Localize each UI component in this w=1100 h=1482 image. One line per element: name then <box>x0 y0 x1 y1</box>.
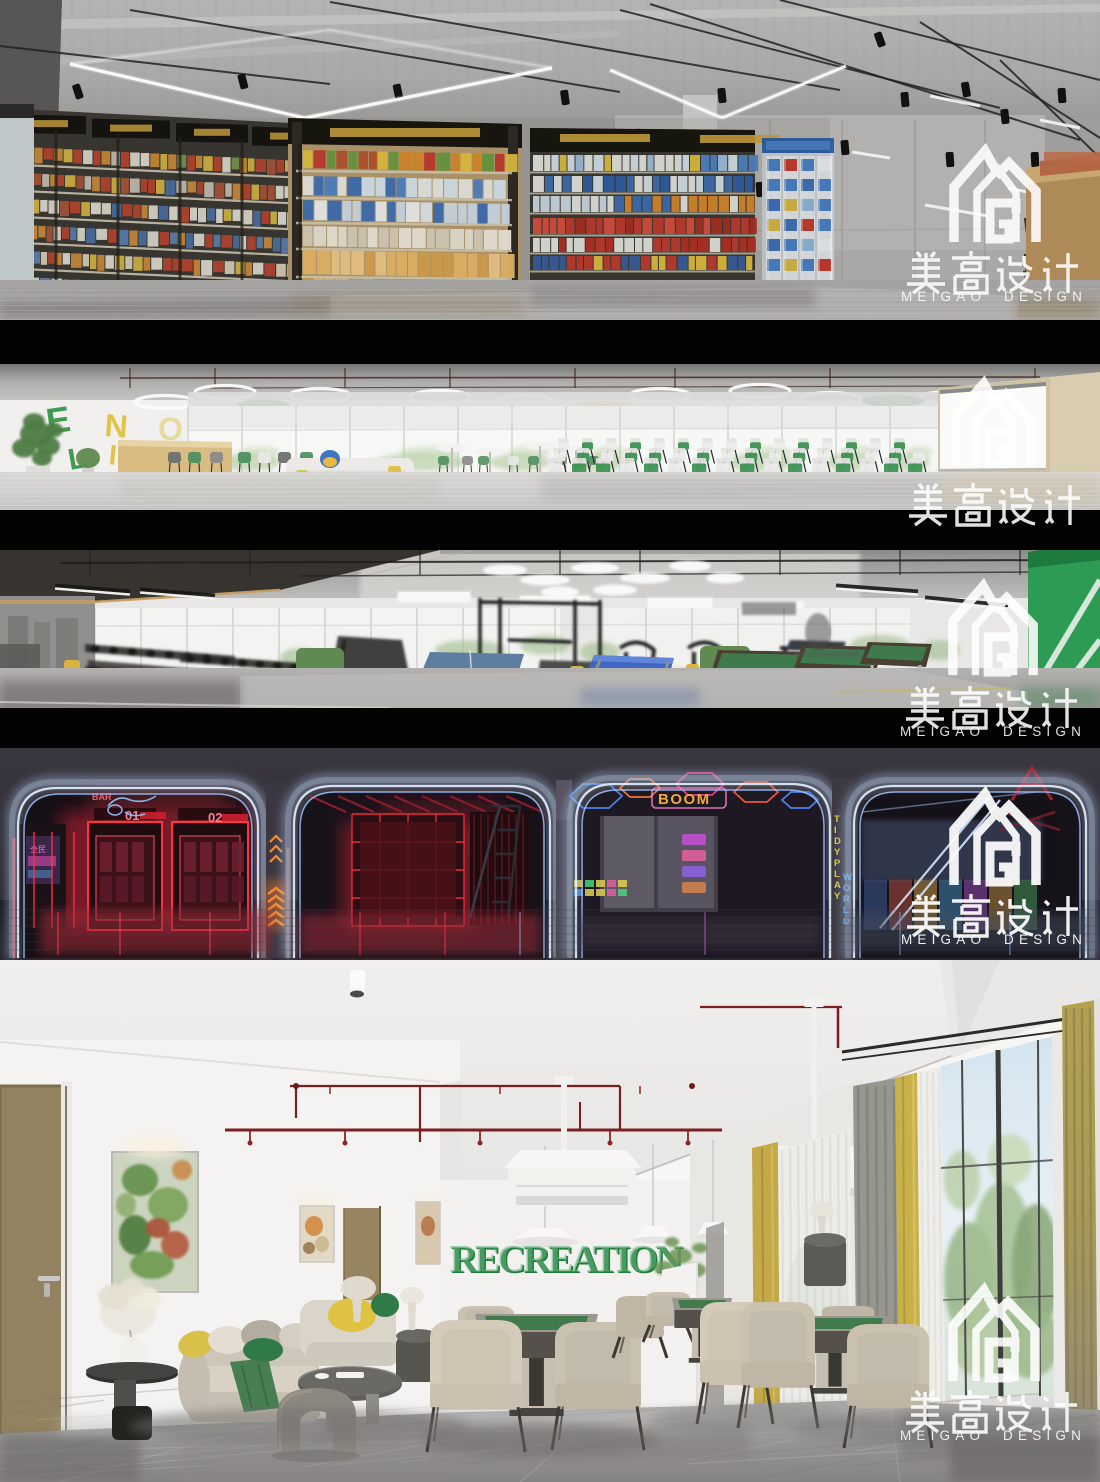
svg-text:全民: 全民 <box>30 844 46 854</box>
svg-text:02: 02 <box>208 810 222 825</box>
svg-text:MEIGAO DESIGN: MEIGAO DESIGN <box>901 289 1087 304</box>
svg-text:P: P <box>834 858 841 869</box>
svg-text:L: L <box>834 869 840 880</box>
svg-text:D: D <box>834 836 841 847</box>
svg-text:T: T <box>834 814 840 825</box>
svg-text:Y: Y <box>834 847 841 858</box>
svg-text:BOOM: BOOM <box>658 791 711 808</box>
svg-text:RECREATION: RECREATION <box>450 1238 684 1281</box>
svg-text:MEIGAO DESIGN: MEIGAO DESIGN <box>901 932 1087 947</box>
svg-text:MEIGAO DESIGN: MEIGAO DESIGN <box>900 724 1086 739</box>
svg-text:I: I <box>834 825 837 836</box>
svg-text:Y: Y <box>834 891 841 902</box>
svg-text:MEIGAO DESIGN: MEIGAO DESIGN <box>900 1428 1086 1443</box>
svg-text:A: A <box>834 880 841 891</box>
